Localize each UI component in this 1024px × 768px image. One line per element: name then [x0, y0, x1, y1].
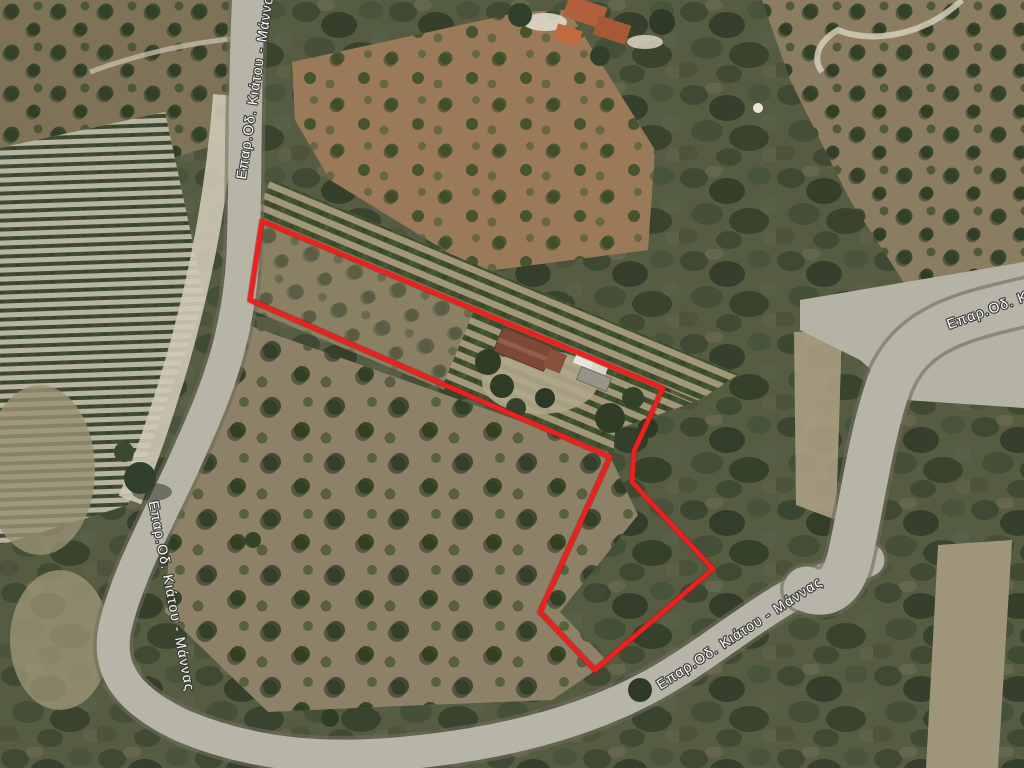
satellite-map-view: Επαρ.Οδ. Κιάτου - Μάννας Επαρ.Οδ. Κιάτου…: [0, 0, 1024, 768]
aerial-imagery: Επαρ.Οδ. Κιάτου - Μάννας Επαρ.Οδ. Κιάτου…: [0, 0, 1024, 768]
eroded-slope-bottom-right: [926, 540, 1012, 768]
dirt-slope-right-road: [794, 330, 842, 520]
water-tank: [753, 103, 763, 113]
